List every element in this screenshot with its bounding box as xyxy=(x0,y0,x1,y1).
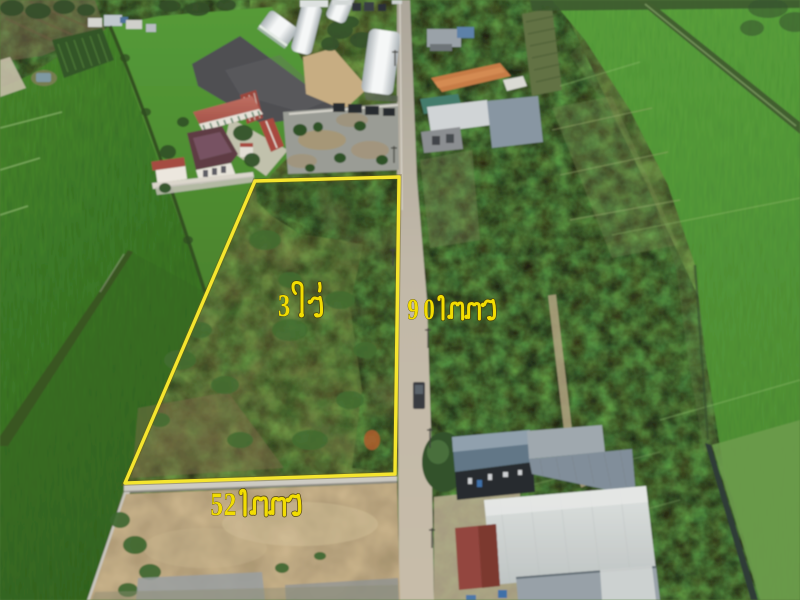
svg-text:3: 3 xyxy=(278,289,290,324)
svg-text:52: 52 xyxy=(211,487,237,523)
